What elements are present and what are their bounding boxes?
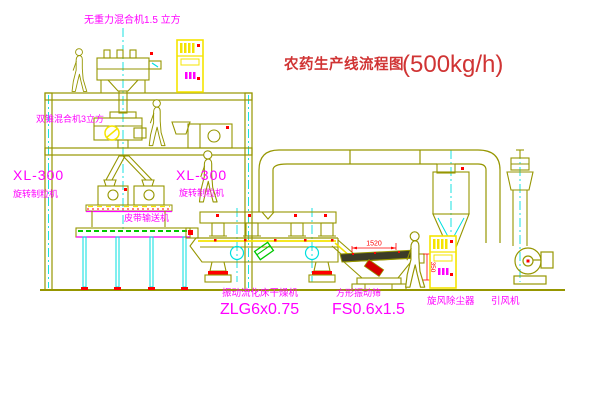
belt-conveyor — [76, 228, 190, 290]
label-dryer-model: ZLG6x0.75 — [220, 301, 299, 318]
page-title-capacity: (500kg/h) — [402, 51, 503, 78]
label-belt-conveyor: 皮带输送机 — [124, 212, 169, 223]
dimension-1520: 1520 — [366, 241, 382, 248]
gravity-mixer — [97, 50, 161, 113]
sieve-motor — [364, 260, 383, 277]
label-sieve-model: FS0.6x1.5 — [332, 301, 405, 318]
granulator-right-machine — [172, 122, 232, 148]
y-chute-right — [123, 156, 152, 180]
granulator-left-machine — [98, 180, 164, 205]
fluid-bed-dryer — [186, 212, 338, 282]
label-sieve-name: 方形振动筛 — [336, 287, 381, 298]
cad-flow-diagram: 无重力混合机1.5 立方 双锥混合机3立方 XL-300 旋转制粒机 XL-30… — [0, 0, 600, 403]
label-dryer-name: 振动流化床干燥机 — [222, 287, 299, 299]
label-cyclone: 旋风除尘器 — [427, 295, 475, 307]
worker-figure-roof-icon — [72, 49, 87, 92]
label-granulator-right-model: XL-300 — [176, 167, 227, 183]
label-gravity-mixer: 无重力混合机1.5 立方 — [84, 13, 181, 26]
worker-figure-ground-icon — [406, 232, 425, 287]
y-chute-left — [106, 156, 125, 180]
exhaust-duct — [259, 150, 500, 243]
label-granulator-left-name: 旋转制粒机 — [13, 188, 58, 199]
dryer-connectors — [209, 223, 336, 236]
dryer-motor — [255, 242, 274, 259]
label-granulator-right-name: 旋转制粒机 — [179, 187, 224, 198]
label-fan: 引风机 — [491, 295, 520, 307]
dimension-350: 350 — [429, 262, 436, 273]
worker-figure-floor2-icon — [149, 100, 165, 146]
label-granulator-left-model: XL-300 — [13, 167, 64, 183]
control-cabinet-1 — [177, 40, 203, 92]
label-cone-mixer: 双锥混合机3立方 — [36, 113, 104, 124]
page-title: 农药生产线流程图 — [283, 55, 404, 73]
diagram-svg: 无重力混合机1.5 立方 双锥混合机3立方 XL-300 旋转制粒机 XL-30… — [0, 0, 600, 403]
